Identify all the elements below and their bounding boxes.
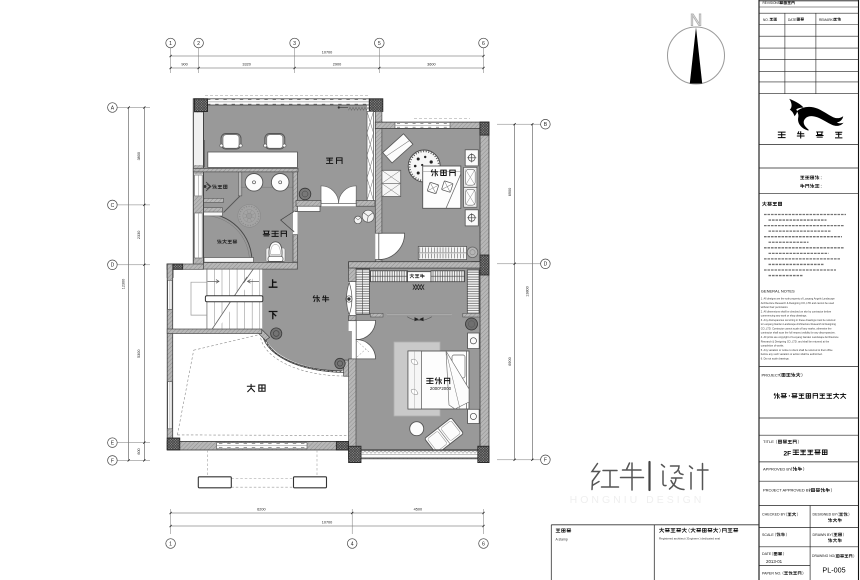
svg-text:DESIGNED BY: DESIGNED BY <box>813 513 838 517</box>
svg-text:Architecture Research & Design: Architecture Research & Designing CO.,LT… <box>761 301 835 305</box>
svg-text:contractor shall scan the full: contractor shall scan the full respect v… <box>761 331 836 335</box>
svg-text:APPROVED BY: APPROVED BY <box>763 466 792 471</box>
svg-text:DRAWN BY: DRAWN BY <box>813 533 833 537</box>
svg-text:6200: 6200 <box>257 507 265 511</box>
svg-text:commencing any work or shop dr: commencing any work or shop drawings. <box>761 314 807 318</box>
svg-text:completion of works.: completion of works. <box>761 344 785 348</box>
svg-text:N: N <box>690 11 702 30</box>
svg-text:900: 900 <box>181 62 187 66</box>
svg-text:REMARKS: REMARKS <box>819 18 835 22</box>
svg-text:before any such variation or a: before any such variation or action shal… <box>761 352 823 356</box>
svg-text:5: 5 <box>378 41 381 47</box>
svg-text:4. All prints are copyright of: 4. All prints are copyright of Luoyang G… <box>761 335 839 339</box>
svg-text:GENERAL NOTES: GENERAL NOTES <box>761 288 795 293</box>
svg-text:C: C <box>111 203 115 209</box>
svg-text:1. All designs are the sole pr: 1. All designs are the sole property of … <box>761 297 835 301</box>
svg-text:D: D <box>544 262 548 268</box>
svg-text:to Luoyang Garden Landscape Ar: to Luoyang Garden Landscape Architecture… <box>761 322 837 326</box>
svg-text:6: 6 <box>482 541 485 547</box>
svg-text:Registered architect ( Enginee: Registered architect ( Engineer ) dedica… <box>659 537 720 541</box>
svg-text:5300: 5300 <box>137 349 141 357</box>
svg-text:6: 6 <box>482 41 485 47</box>
svg-text:6. Do not scale drawings.: 6. Do not scale drawings. <box>761 356 790 360</box>
svg-text:6900: 6900 <box>508 188 512 196</box>
svg-text:2. All dimensions shall be che: 2. All dimensions shall be checked on si… <box>761 309 832 313</box>
svg-text:F: F <box>111 458 114 464</box>
svg-text:NO.: NO. <box>763 18 769 22</box>
svg-text:5. Any variation or notice to: 5. Any variation or notice to client sha… <box>761 348 833 352</box>
svg-text:2F: 2F <box>784 450 792 457</box>
svg-text:3: 3 <box>293 41 296 47</box>
svg-text:10700: 10700 <box>322 50 333 54</box>
svg-text:3600: 3600 <box>427 62 435 66</box>
svg-text:DATE: DATE <box>788 18 796 22</box>
svg-text:2900: 2900 <box>333 62 341 66</box>
svg-text:2330: 2330 <box>137 231 141 239</box>
svg-text:4: 4 <box>351 541 354 547</box>
svg-text:1: 1 <box>169 41 172 47</box>
svg-text:3. Any discrepancies occurring: 3. Any discrepancies occurring in these … <box>761 318 836 322</box>
svg-text:10700: 10700 <box>322 520 333 524</box>
svg-text:2013-01: 2013-01 <box>766 559 783 564</box>
svg-text:PAPER NO.: PAPER NO. <box>762 571 781 575</box>
svg-text:CHECKED BY: CHECKED BY <box>762 513 786 517</box>
svg-text:without their permission.: without their permission. <box>761 305 789 309</box>
svg-text:3800: 3800 <box>137 152 141 160</box>
svg-text:A stamp: A stamp <box>556 537 568 541</box>
svg-text:PROJECT: PROJECT <box>762 372 781 377</box>
svg-text:DATE: DATE <box>762 552 772 556</box>
svg-text:13800: 13800 <box>526 286 530 297</box>
svg-text:SCALE: SCALE <box>762 533 774 537</box>
svg-text:6900: 6900 <box>508 357 512 365</box>
svg-text:CO.,LTD. Contractor cannot sca: CO.,LTD. Contractor cannot scale off any… <box>761 326 832 330</box>
svg-text:600: 600 <box>137 448 141 454</box>
svg-text:Research & Designing CO.,LTD.: Research & Designing CO.,LTD. and shall … <box>761 339 830 343</box>
svg-text:1: 1 <box>169 541 172 547</box>
svg-text:12300: 12300 <box>122 279 126 290</box>
svg-text:F: F <box>544 458 547 464</box>
svg-text:PL-005: PL-005 <box>822 566 845 575</box>
svg-text:REVISIONS: REVISIONS <box>763 1 780 5</box>
svg-text:3320: 3320 <box>242 62 250 66</box>
svg-text:2000*2000: 2000*2000 <box>430 386 452 391</box>
svg-text:4500: 4500 <box>414 507 422 511</box>
svg-text:DRAWING NO.: DRAWING NO. <box>812 554 835 558</box>
svg-text:HONGNIU DESIGN: HONGNIU DESIGN <box>570 494 705 506</box>
svg-text:2: 2 <box>197 41 200 47</box>
svg-text:PROJECT APPROVED BY: PROJECT APPROVED BY <box>763 488 811 493</box>
svg-text:D: D <box>111 263 115 269</box>
svg-text:TITLE: TITLE <box>763 439 774 444</box>
